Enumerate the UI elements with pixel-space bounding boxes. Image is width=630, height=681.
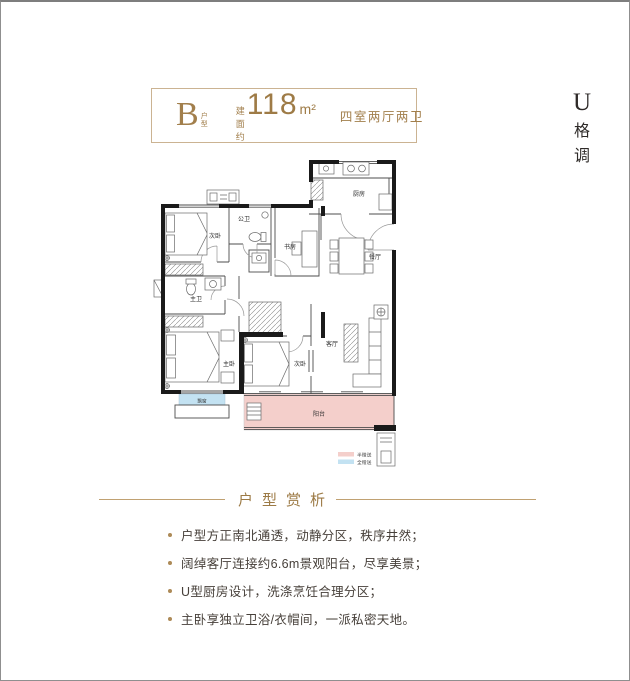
area-prefix: 建面约: [236, 104, 245, 143]
room-label-public-bathroom: 公卫: [238, 216, 250, 223]
unit-type: B 户型: [176, 100, 210, 131]
analysis-bullet: 户型方正南北通透，动静分区，秩序井然；: [168, 525, 428, 544]
brand-char: 格: [574, 124, 590, 140]
room-label-secondary-bedroom-north: 次卧: [209, 232, 221, 240]
room-label-kitchen: 厨房: [353, 190, 365, 198]
dining-table: [339, 238, 364, 274]
washbasin: [262, 212, 268, 218]
bullet-text: 阔绰客厅连接约6.6m景观阳台，尽享美景；: [181, 553, 428, 572]
unit-type-letter: B: [176, 100, 199, 131]
bullet-text: 主卧享独立卫浴/衣帽间，一派私密天地。: [181, 609, 415, 628]
legend-label-full-gift: 全赠送: [357, 459, 372, 466]
analysis-bullet: 阔绰客厅连接约6.6m景观阳台，尽享美景；: [168, 553, 428, 572]
ac-platform: [207, 190, 239, 204]
divider-line: [336, 499, 536, 500]
wardrobe: [165, 264, 203, 275]
fridge: [379, 194, 392, 210]
room-label-master-bedroom: 主卧: [223, 360, 235, 368]
room-label-dining-room: 餐厅: [369, 253, 381, 261]
structural-walls: [161, 160, 396, 431]
bullet-dot-icon: [168, 561, 172, 565]
legend-swatch-full-gift: [338, 460, 354, 465]
brand-mark: U 格 调: [567, 90, 597, 165]
flyer-page: B 户型 建面约 118 m² 四室两厅两卫 U 格 调: [0, 0, 630, 681]
divider-line: [99, 499, 225, 500]
brand-char: 调: [574, 149, 590, 165]
unit-layout-text: 四室两厅两卫: [340, 106, 424, 125]
analysis-title: 户型赏析: [238, 489, 334, 510]
washer: [247, 403, 261, 420]
area-value: 118: [247, 88, 298, 122]
area-unit: m²: [300, 101, 316, 117]
floorplan: 次卧 公卫 书房 厨房 餐厅 主卫 主卧 次卧 客厅 阳台 飘窗 半赠送 全赠送: [141, 154, 431, 479]
partition-walls: [163, 161, 396, 429]
sofa-chaise: [353, 374, 381, 387]
toilet: [187, 283, 196, 295]
analysis-header: 户型赏析: [99, 489, 536, 510]
floorplan-svg: 次卧 公卫 书房 厨房 餐厅 主卫 主卧 次卧 客厅 阳台 飘窗 半赠送 全赠送: [141, 154, 431, 474]
legend-swatch-half-gift: [338, 452, 354, 457]
analysis-bullet: 主卧享独立卫浴/衣帽间，一派私密天地。: [168, 609, 428, 628]
room-label-bay-window: 飘窗: [197, 398, 207, 405]
washbasin: [252, 253, 266, 263]
bullet-dot-icon: [168, 589, 172, 593]
analysis-bullet: U型厨房设计，洗涤烹饪合理分区；: [168, 581, 428, 600]
cloakroom-closet: [249, 302, 281, 336]
bullet-text: 户型方正南北通透，动静分区，秩序井然；: [181, 525, 424, 544]
plan-legend: 半赠送 全赠送: [338, 452, 372, 467]
bullet-dot-icon: [168, 533, 172, 537]
unit-type-suffix: 户型: [201, 113, 210, 129]
bullet-text: U型厨房设计，洗涤烹饪合理分区；: [181, 581, 382, 600]
bullet-dot-icon: [168, 617, 172, 621]
room-label-living-room: 客厅: [326, 340, 338, 348]
room-label-master-bathroom: 主卫: [190, 295, 202, 303]
toilet: [249, 233, 261, 242]
analysis-bullet-list: 户型方正南北通透，动静分区，秩序井然； 阔绰客厅连接约6.6m景观阳台，尽享美景…: [168, 525, 428, 637]
desk: [302, 231, 317, 267]
legend-label-half-gift: 半赠送: [357, 452, 372, 459]
room-label-balcony: 阳台: [313, 410, 325, 418]
kitchen-sink: [319, 163, 334, 174]
wardrobe: [165, 316, 203, 327]
nightstand: [221, 372, 234, 383]
vanity: [205, 278, 221, 290]
brand-logo-letter: U: [573, 90, 591, 115]
unit-spec-box: B 户型 建面约 118 m² 四室两厅两卫: [151, 88, 417, 143]
nightstand: [221, 330, 234, 341]
tv-cabinet: [344, 324, 358, 362]
unit-area: 建面约 118 m²: [236, 88, 316, 143]
room-label-secondary-bedroom-south: 次卧: [294, 360, 306, 368]
flue-shaft: [311, 180, 323, 200]
room-label-study: 书房: [284, 243, 296, 251]
